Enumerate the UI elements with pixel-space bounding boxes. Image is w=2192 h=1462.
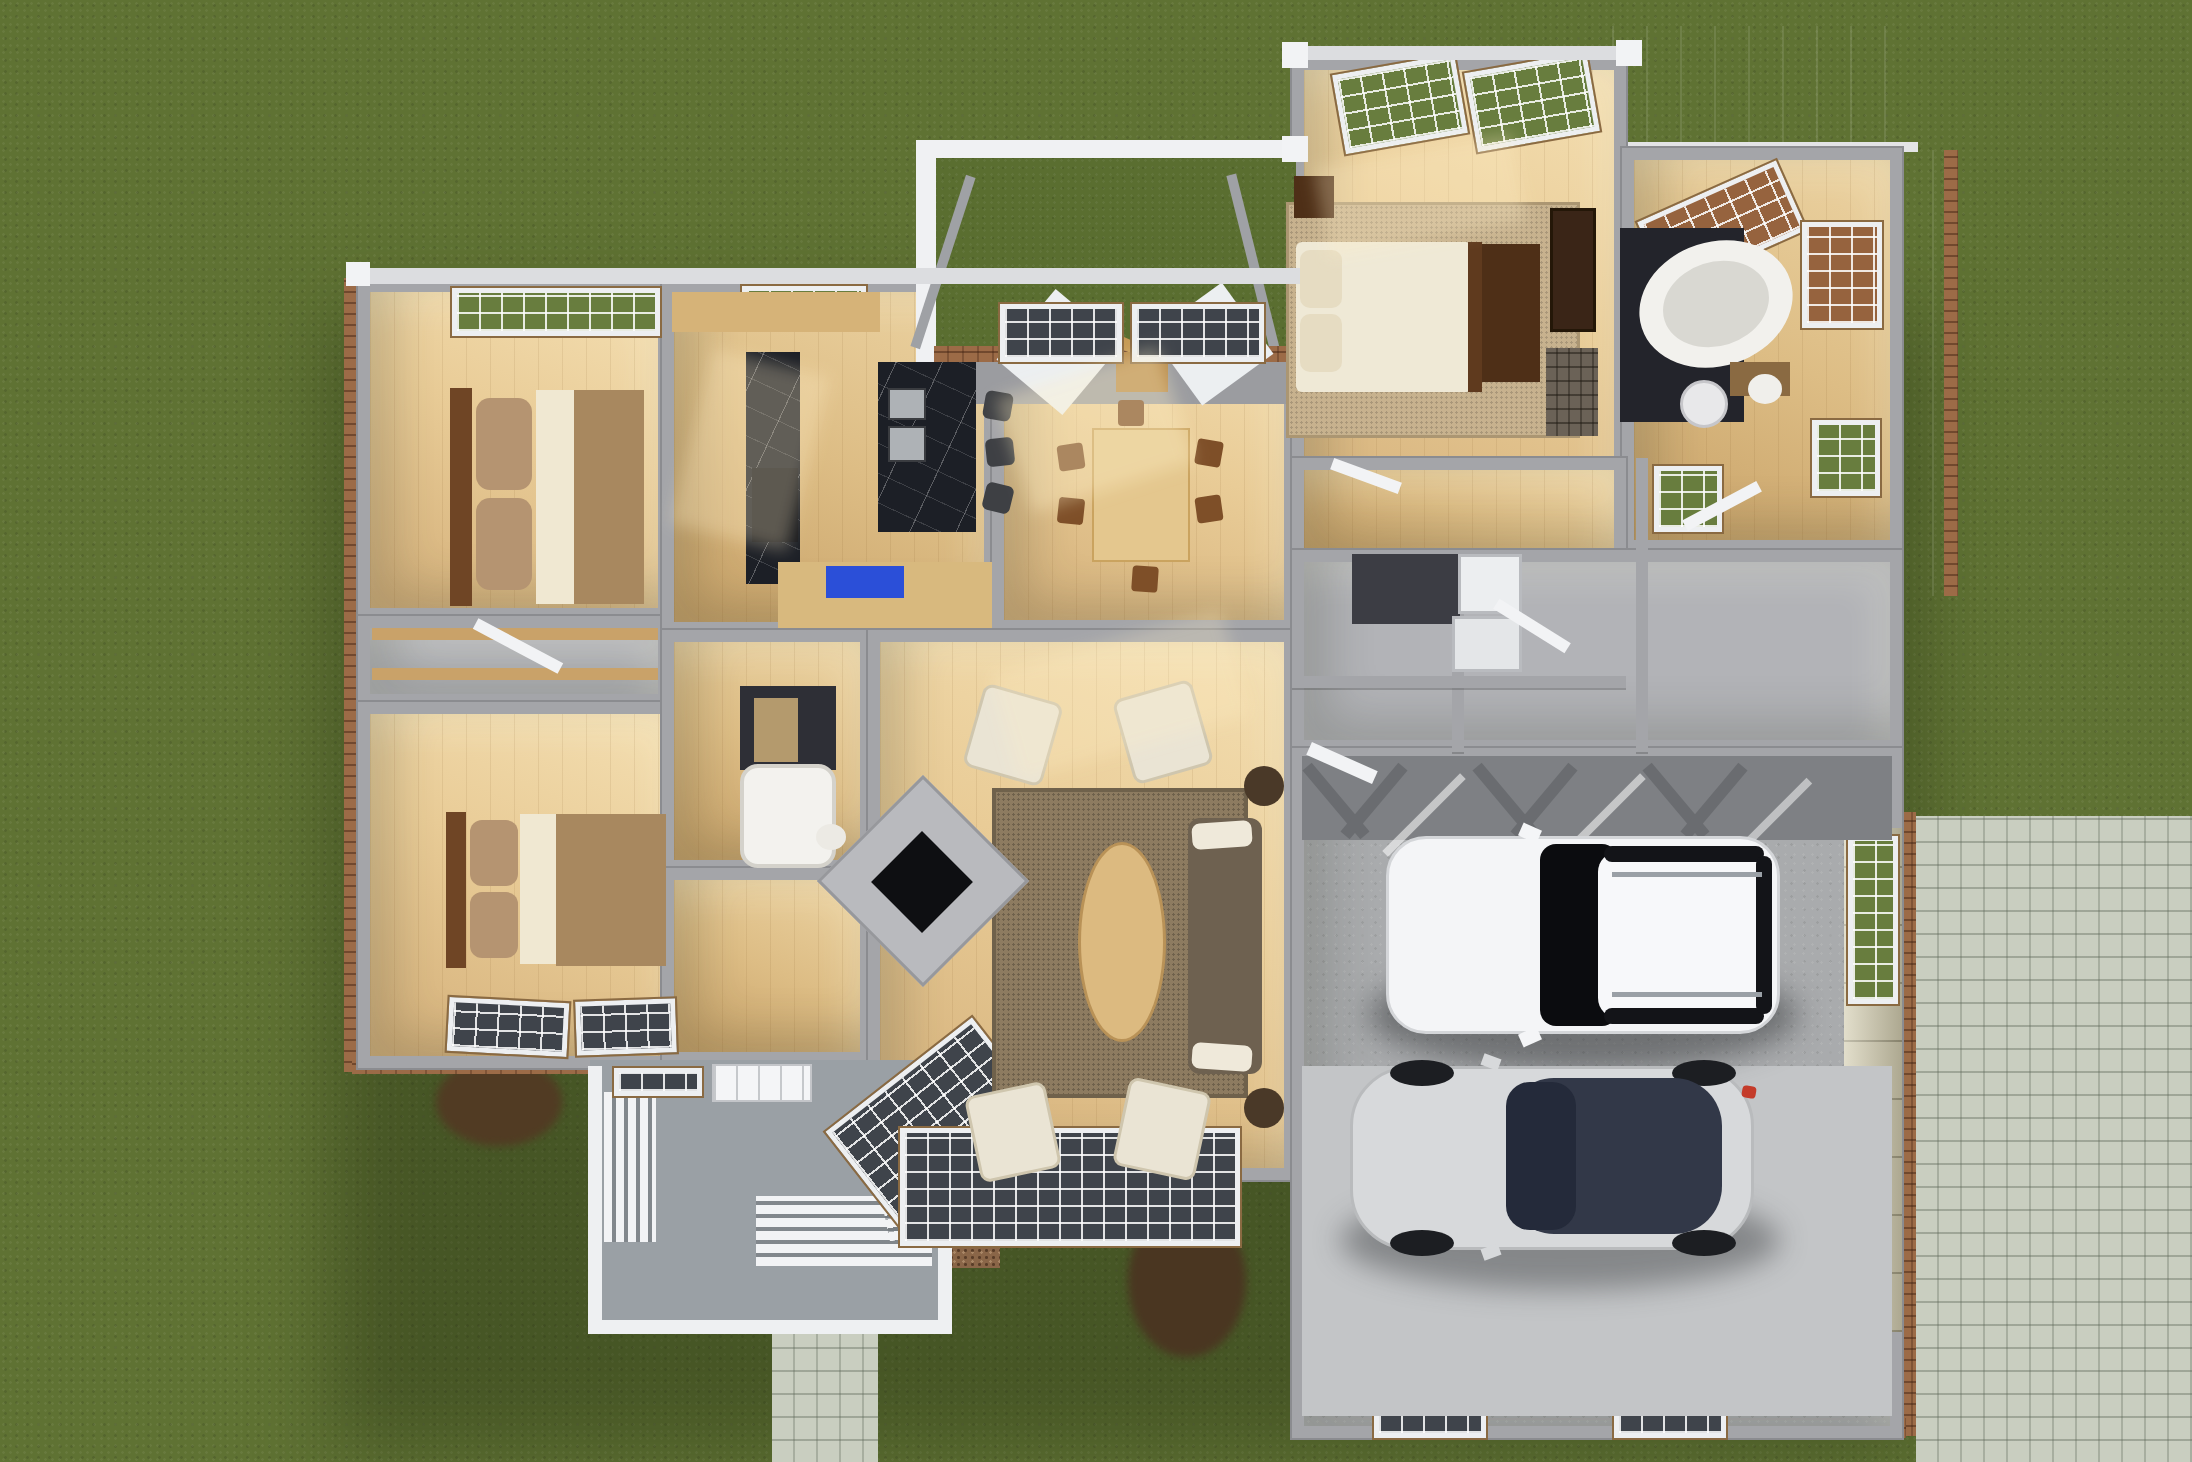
roof-top-right	[1612, 26, 1918, 148]
laundry-tile-floor	[1352, 554, 1460, 624]
hall-wall-3	[1292, 676, 1626, 688]
stage	[0, 0, 2192, 1462]
water-heater	[1680, 380, 1728, 428]
bed1-pillow-2	[476, 498, 532, 590]
washer	[1458, 554, 1522, 614]
suv-rear-glass	[1756, 856, 1772, 1014]
sedan-taillight	[1741, 1085, 1757, 1099]
window-bedroom-bl-2	[575, 998, 677, 1055]
side-table-1	[1244, 766, 1284, 806]
dining-chair-6	[1131, 565, 1159, 593]
hall-wall-2	[1636, 458, 1648, 752]
coffee-table	[1078, 842, 1166, 1042]
dryer	[1452, 616, 1522, 672]
master-bed-footrail	[1468, 242, 1482, 392]
bed2-duvet	[556, 814, 666, 966]
bed2-headboard	[446, 812, 466, 968]
brick-trim-left-wall	[344, 278, 358, 1072]
kitchen-blue-cooktop	[826, 566, 904, 598]
master-wall-art	[1550, 208, 1596, 332]
fascia-master-top	[1292, 46, 1626, 60]
master-pillow-1	[1300, 250, 1342, 308]
driveway-pavers	[1916, 816, 2192, 1462]
hallbath-tub	[740, 764, 836, 868]
suv-side-glass-bottom	[1604, 1008, 1764, 1024]
porch-beam-top	[916, 140, 1298, 158]
window-bedroom-topleft	[452, 288, 660, 336]
kitchen-upper-cabinets	[672, 292, 880, 332]
front-porch-rail-left	[588, 1066, 602, 1334]
bed1-headboard	[450, 388, 472, 606]
corner-post-master-left	[1282, 42, 1308, 68]
front-porch-lattice	[604, 1092, 656, 1242]
master-dresser	[1482, 244, 1540, 382]
suv-side-glass-top	[1604, 846, 1764, 862]
entry-sidelight-window	[614, 1068, 702, 1096]
master-pillow-2	[1300, 314, 1342, 372]
roof-right-brick-edge	[1944, 150, 1958, 596]
sedan-windshield	[1506, 1082, 1576, 1230]
sedan-wheel-4	[1672, 1230, 1736, 1256]
sedan-wheel-3	[1390, 1230, 1454, 1256]
side-table-2	[1244, 1088, 1284, 1128]
bed2-pillow-1	[470, 820, 518, 886]
front-door	[712, 1064, 812, 1102]
sofa-pillow-1	[1191, 820, 1253, 850]
suv-roof-rail-1	[1612, 872, 1762, 877]
bed1-pillow-1	[476, 398, 532, 490]
bed1-duvet	[574, 390, 644, 604]
bed1-linen	[536, 390, 576, 604]
master-stone-panel	[1546, 348, 1598, 436]
corner-post-porch	[1282, 136, 1308, 162]
corner-post-topleft	[346, 262, 370, 286]
front-porch-rail-bottom	[588, 1320, 952, 1334]
bed2-linen	[520, 814, 556, 964]
sofa	[1188, 818, 1262, 1074]
dining-chair-4	[1194, 494, 1223, 523]
garage-side-door-panes	[1848, 836, 1898, 1004]
dining-french-door	[1000, 304, 1122, 362]
suv-roof-rail-2	[1612, 992, 1762, 997]
sofa-pillow-2	[1191, 1042, 1253, 1072]
window-bath-right	[1802, 222, 1882, 328]
sedan-wheel-1	[1390, 1060, 1454, 1086]
corner-post-master-right	[1616, 40, 1642, 66]
hallbath-sink	[816, 824, 846, 850]
dining-chair-3	[1194, 438, 1224, 468]
hallbath-tile-accent	[754, 698, 798, 762]
closet-shelf-2	[372, 668, 658, 680]
kitchen-sink-basin-1	[888, 388, 926, 420]
window-small-room	[1812, 420, 1880, 496]
fascia-top-wall	[350, 268, 1300, 284]
window-bedroom-bl-1	[447, 997, 570, 1057]
masterbath-sink	[1748, 374, 1782, 404]
bed2-pillow-2	[470, 892, 518, 958]
kitchen-sink-basin-2	[888, 426, 926, 462]
